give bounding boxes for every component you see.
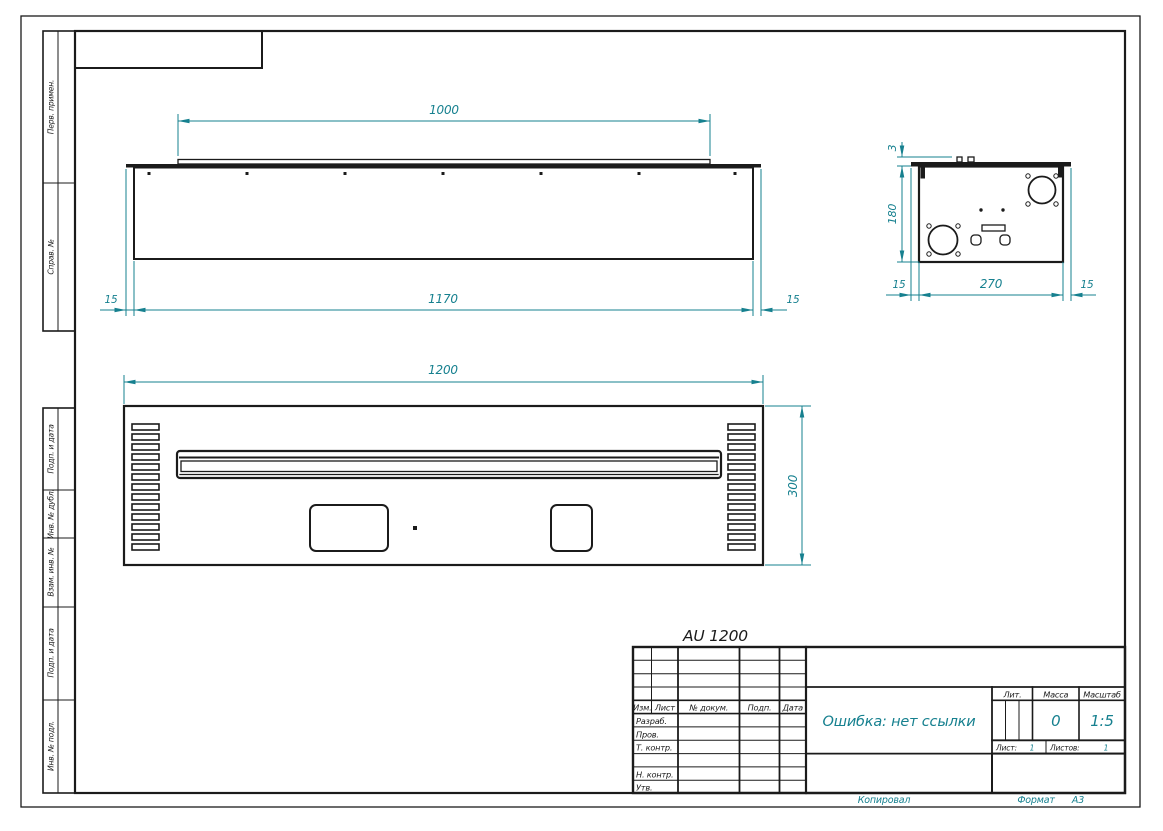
tb-sheets-label: Листов: — [1049, 744, 1080, 753]
margin-label-podp-data-2: Подп. и дата — [47, 628, 56, 678]
tb-col-izm: Изм. — [633, 703, 651, 713]
dim-270: 270 — [980, 277, 1003, 291]
margin-label-sprav-no: Справ. № — [47, 239, 56, 275]
tb-scale-value: 1:5 — [1090, 712, 1114, 730]
left-margin-columns: Перв. примен. Справ. № Подп. и дата Инв.… — [43, 31, 75, 793]
tb-row-razrab: Разраб. — [636, 716, 667, 726]
tb-doc-name: Ошибка: нет ссылки — [823, 714, 976, 730]
dim-15-side-right: 15 — [1081, 279, 1094, 291]
tb-mass-label: Масса — [1043, 690, 1068, 700]
org-name-cell — [992, 754, 1125, 793]
dim-15-right: 15 — [787, 294, 800, 306]
side-body — [919, 167, 1063, 263]
margin-label-vzam-inv: Взам. инв. № — [47, 547, 56, 596]
tb-scale-label: Масштаб — [1083, 690, 1121, 700]
margin-label-perv-primen: Перв. примен. — [47, 80, 56, 134]
tb-lit-label: Лит. — [1002, 690, 1021, 700]
tb-col-podp: Подп. — [748, 703, 772, 713]
tb-sheet-value: 1 — [1030, 744, 1035, 753]
tb-sheet-label: Лист: — [995, 744, 1017, 753]
front-view — [124, 406, 763, 565]
title-block: Изм. Лист № докум. Подп. Дата Разраб. Пр… — [633, 647, 1125, 793]
footer-format-value: А3 — [1071, 795, 1084, 806]
top-left-designation-box — [75, 31, 262, 68]
tb-col-data: Дата — [782, 703, 804, 713]
rear-view — [126, 160, 761, 260]
tb-col-doc: № докум. — [688, 703, 728, 713]
front-grille-slot — [177, 451, 721, 478]
drawing-label-au1200: AU 1200 — [682, 627, 748, 645]
front-cutout-small — [551, 505, 592, 551]
tb-mass-value: 0 — [1051, 712, 1060, 730]
dim-15-left: 15 — [105, 294, 118, 306]
tb-sheets-value: 1 — [1104, 744, 1109, 753]
dim-1200: 1200 — [428, 363, 458, 377]
footer-copied: Копировал — [858, 795, 911, 806]
dim-180: 180 — [886, 204, 899, 225]
margin-label-podp-data-1: Подп. и дата — [47, 424, 56, 474]
dim-3: 3 — [886, 144, 899, 151]
dim-1170: 1170 — [428, 292, 458, 306]
tb-col-list: Лист — [654, 703, 675, 713]
cad-drawing-canvas: Перв. примен. Справ. № Подп. и дата Инв.… — [0, 0, 1163, 831]
tb-row-prov: Пров. — [636, 729, 659, 739]
rear-strip — [178, 160, 710, 165]
tb-row-tcontr: Т. контр. — [636, 743, 672, 753]
footer-format-label: Формат — [1017, 795, 1055, 806]
tb-row-utv: Утв. — [636, 783, 652, 793]
dim-300: 300 — [786, 474, 800, 497]
front-cutout-large — [310, 505, 388, 551]
dim-15-side-left: 15 — [893, 279, 906, 291]
side-view — [911, 157, 1071, 262]
margin-label-inv-dubl: Инв. № дубл. — [47, 489, 56, 539]
margin-label-inv-podl: Инв. № подл. — [47, 721, 56, 771]
sheet-footer: Копировал Формат А3 — [858, 795, 1084, 806]
dim-1000: 1000 — [429, 103, 459, 117]
rear-body — [134, 168, 753, 260]
drawing-sheet: Перв. примен. Справ. № Подп. и дата Инв.… — [0, 0, 1163, 831]
front-panel — [124, 406, 763, 565]
tb-row-ncontr: Н. контр. — [636, 769, 673, 779]
front-pilot-hole — [413, 526, 417, 530]
